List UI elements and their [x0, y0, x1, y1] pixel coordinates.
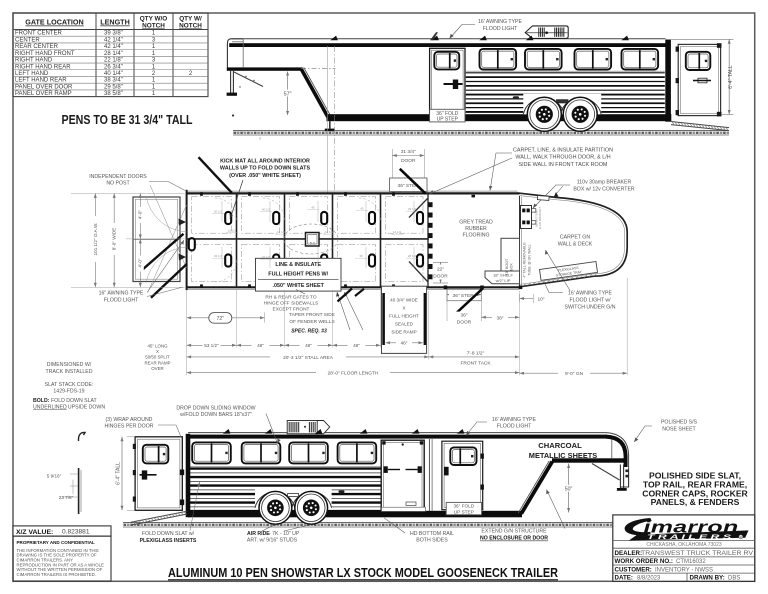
svg-text:BOTH SIDES: BOTH SIDES — [416, 538, 448, 544]
svg-text:X: X — [402, 306, 405, 311]
svg-text:QTY W/O: QTY W/O — [140, 16, 168, 23]
svg-text:GATE LOCATION: GATE LOCATION — [25, 18, 83, 27]
svg-text:PANEL OVER RAMP: PANEL OVER RAMP — [15, 91, 72, 97]
svg-text:0.823881: 0.823881 — [62, 529, 90, 536]
svg-text:CTM16032: CTM16032 — [676, 559, 706, 565]
svg-text:45: 45 — [360, 207, 364, 211]
svg-text:26 3/4": 26 3/4" — [104, 64, 123, 70]
svg-text:SLAT STACK CODE:: SLAT STACK CODE: — [45, 382, 94, 388]
svg-text:10 1/2: 10 1/2 — [228, 229, 237, 233]
svg-text:12 1/2: 12 1/2 — [325, 230, 334, 234]
svg-text:CIMARRON TRAILERS IS PROHIBITE: CIMARRON TRAILERS IS PROHIBITED. — [17, 572, 96, 577]
svg-text:FLOOD LIGHT: FLOOD LIGHT — [104, 297, 139, 303]
svg-text:32 1/2: 32 1/2 — [262, 255, 271, 259]
svg-text:16' AWNING TYPE: 16' AWNING TYPE — [568, 290, 612, 296]
svg-text:WALLS UP TO FOLD DOWN SLATS: WALLS UP TO FOLD DOWN SLATS — [220, 166, 311, 172]
svg-text:ART. w/ 9/16" STUDS: ART. w/ 9/16" STUDS — [247, 538, 298, 544]
svg-text:42 1/4": 42 1/4" — [104, 44, 123, 50]
svg-text:OF FENDER WELLS: OF FENDER WELLS — [289, 319, 334, 325]
svg-text:DIMENSIONED W/: DIMENSIONED W/ — [47, 362, 92, 368]
svg-text:.050" WHITE SHEET: .050" WHITE SHEET — [273, 283, 325, 289]
svg-text:DEALER:: DEALER: — [615, 550, 643, 557]
svg-text:ALUMINUM 10 PEN SHOWSTAR LX ST: ALUMINUM 10 PEN SHOWSTAR LX STOCK MODEL … — [168, 565, 559, 580]
svg-text:16' AWNING TYPE: 16' AWNING TYPE — [492, 417, 536, 423]
svg-text:BOX: BOX — [510, 263, 514, 271]
svg-text:HINGES PER DOOR: HINGES PER DOOR — [104, 424, 153, 430]
svg-text:LINE & INSULATE: LINE & INSULATE — [275, 262, 321, 268]
svg-text:38": 38" — [496, 316, 503, 322]
svg-text:INVENTORY - NWSS: INVENTORY - NWSS — [655, 567, 713, 573]
svg-text:4" TALL REMOVABLE: 4" TALL REMOVABLE — [523, 242, 527, 278]
svg-text:: UPSIDE DOWN: : UPSIDE DOWN — [65, 404, 105, 410]
svg-text:FLOORING: FLOORING — [462, 233, 489, 239]
svg-text:BOX w/ 12v CONVERTER: BOX w/ 12v CONVERTER — [573, 187, 635, 193]
svg-text:50": 50" — [565, 487, 573, 493]
svg-text:RH & REAR GATES TO: RH & REAR GATES TO — [265, 295, 316, 301]
svg-text:CHARCOAL: CHARCOAL — [538, 441, 582, 450]
svg-text:6'-4" TALL: 6'-4" TALL — [728, 65, 734, 89]
svg-text:NOTCH: NOTCH — [142, 23, 165, 30]
svg-text:8'-0" WIDE: 8'-0" WIDE — [112, 228, 117, 250]
svg-text:FULL HEIGHT PENS W/: FULL HEIGHT PENS W/ — [268, 272, 328, 278]
svg-text:RIGHT HAND FRONT: RIGHT HAND FRONT — [15, 51, 75, 57]
svg-text:45: 45 — [311, 206, 315, 210]
svg-text:UP STEP: UP STEP — [437, 117, 459, 123]
svg-text:PANELS, & FENDERS: PANELS, & FENDERS — [651, 497, 740, 507]
svg-text:(3) WRAP AROUND: (3) WRAP AROUND — [106, 417, 153, 423]
svg-text:72": 72" — [216, 316, 224, 322]
svg-text:101 1/2" O.A.W.: 101 1/2" O.A.W. — [93, 223, 98, 256]
svg-text:30 1/2: 30 1/2 — [214, 210, 223, 214]
svg-text:DOOR: DOOR — [457, 320, 472, 326]
svg-text:PANEL OVER DOOR: PANEL OVER DOOR — [15, 84, 73, 90]
svg-text:EXTEND G/N STRUCTURE: EXTEND G/N STRUCTURE — [481, 528, 547, 534]
svg-text:35: 35 — [359, 254, 363, 258]
svg-text:40 1/2: 40 1/2 — [262, 208, 271, 212]
svg-text:METALLIC SHEETS: METALLIC SHEETS — [529, 451, 598, 460]
svg-text:53 1/2": 53 1/2" — [204, 343, 219, 348]
svg-text:SEALED: SEALED — [395, 322, 414, 327]
svg-text:4'-0": 4'-0" — [138, 210, 143, 220]
svg-text:CARPET GN: CARPET GN — [560, 235, 590, 241]
svg-text:SWITCH UNDER G/N: SWITCH UNDER G/N — [564, 305, 615, 311]
svg-text:2: 2 — [242, 130, 244, 134]
svg-text:INDEPENDENT DOORS: INDEPENDENT DOORS — [89, 174, 147, 180]
svg-text:CARPET, LINE, & INSULATE PARTI: CARPET, LINE, & INSULATE PARTITION — [513, 148, 613, 154]
svg-text:22 1/8": 22 1/8" — [104, 58, 123, 64]
svg-text:8/8/2023: 8/8/2023 — [637, 576, 661, 582]
svg-text:FOLD DOWN SLAT w/: FOLD DOWN SLAT w/ — [142, 531, 195, 537]
svg-text:1429-FDS-19: 1429-FDS-19 — [53, 389, 84, 395]
svg-text:23 7/8": 23 7/8" — [59, 495, 74, 500]
svg-text:48": 48" — [305, 343, 312, 348]
svg-text:RUBBER: RUBBER — [465, 226, 487, 232]
svg-text:SIDE WALL IN FRONT TACK ROOM: SIDE WALL IN FRONT TACK ROOM — [519, 162, 608, 168]
svg-text:DRAWN BY:: DRAWN BY: — [690, 575, 725, 582]
svg-text:DOOR: DOOR — [401, 158, 416, 164]
svg-text:PLEXIGLASS INSERTS: PLEXIGLASS INSERTS — [140, 538, 197, 544]
svg-text:7'-8 1/2": 7'-8 1/2" — [467, 350, 485, 356]
svg-text:31 3/4": 31 3/4" — [401, 149, 416, 155]
svg-text:UP STEP: UP STEP — [454, 509, 474, 514]
svg-text:- 7K - 10" UP: - 7K - 10" UP — [269, 531, 300, 537]
svg-text:T R A I L E R S: T R A I L E R S — [647, 534, 732, 541]
svg-text:9'-0" GN: 9'-0" GN — [565, 371, 584, 377]
svg-text:WALL & DECK: WALL & DECK — [558, 242, 593, 248]
svg-text:16" AWNING TYPE: 16" AWNING TYPE — [99, 291, 144, 297]
svg-text:SIDE RAMP: SIDE RAMP — [391, 330, 416, 335]
svg-text:38 5/8": 38 5/8" — [104, 91, 123, 97]
svg-text:WORK ORDER NO.:: WORK ORDER NO.: — [615, 558, 673, 565]
svg-text:HD BOTTOM RAIL: HD BOTTOM RAIL — [410, 531, 454, 537]
svg-text:WALL, WALK THROUGH DOOR, & L/H: WALL, WALK THROUGH DOOR, & L/H — [515, 155, 610, 161]
svg-text:LEFT HAND: LEFT HAND — [15, 71, 49, 77]
svg-text:DBS: DBS — [728, 576, 740, 582]
svg-text:29 1/2: 29 1/2 — [408, 207, 417, 211]
svg-text:X: X — [156, 349, 159, 354]
svg-text:12 1/4: 12 1/4 — [277, 230, 286, 234]
svg-text:POLISHED S/S: POLISHED S/S — [661, 420, 698, 426]
svg-text:DATE:: DATE: — [615, 575, 633, 582]
svg-text:36": 36" — [460, 313, 467, 319]
svg-text:5 9/16": 5 9/16" — [47, 474, 62, 479]
svg-text:TAPER FRONT SIDE: TAPER FRONT SIDE — [289, 312, 335, 318]
svg-text:REAR CENTER: REAR CENTER — [15, 44, 59, 50]
svg-text:4'-0": 4'-0" — [138, 258, 143, 268]
svg-text:UNDERLINED: UNDERLINED — [33, 404, 67, 410]
svg-text:AIR RIDE: AIR RIDE — [247, 531, 270, 537]
svg-text:LEFT HAND REAR: LEFT HAND REAR — [15, 78, 67, 84]
svg-text:12 1/2: 12 1/2 — [393, 230, 402, 234]
svg-text:DOOR: DOOR — [433, 273, 448, 279]
svg-text:PENS TO BE 31 3/4" TALL: PENS TO BE 31 3/4" TALL — [62, 113, 193, 127]
svg-text:48": 48" — [353, 343, 360, 348]
svg-text:46": 46" — [400, 341, 407, 347]
svg-text:BOLD:: BOLD: — [33, 398, 50, 404]
svg-text:DROP DOWN SLIDING WINDOW: DROP DOWN SLIDING WINDOW — [176, 405, 255, 411]
svg-text:3: 3 — [259, 137, 261, 141]
svg-text:10": 10" — [537, 297, 544, 303]
svg-text:18" SHELF: 18" SHELF — [493, 273, 513, 278]
svg-text:FLOOD LIGHT: FLOOD LIGHT — [497, 424, 532, 430]
svg-text:39 3/8": 39 3/8" — [104, 31, 123, 37]
svg-text:KICK MAT ALL AROUND INTERIOR: KICK MAT ALL AROUND INTERIOR — [220, 159, 310, 165]
svg-text:28 1/4": 28 1/4" — [104, 51, 123, 57]
svg-text:NO ENCLOSURE OR DOOR: NO ENCLOSURE OR DOOR — [480, 536, 548, 542]
svg-text:X/Z VALUE:: X/Z VALUE: — [16, 529, 53, 536]
svg-text:RIGHT HAND REAR: RIGHT HAND REAR — [15, 64, 71, 70]
svg-text:TUBE @ GN WALL: TUBE @ GN WALL — [528, 244, 532, 275]
svg-text:28 1/2: 28 1/2 — [408, 254, 417, 258]
svg-text:50/50 SPLIT: 50/50 SPLIT — [145, 355, 170, 360]
svg-text:42 1/4": 42 1/4" — [104, 37, 123, 43]
svg-text:16' AWNING TYPE: 16' AWNING TYPE — [478, 19, 522, 25]
svg-text:TRANSWEST TRUCK TRAILER RV: TRANSWEST TRUCK TRAILER RV — [641, 551, 753, 557]
svg-text:TRACK INSTALLED: TRACK INSTALLED — [46, 369, 93, 375]
svg-text:CUSTOMER:: CUSTOMER: — [615, 566, 652, 573]
svg-text:22": 22" — [437, 266, 444, 272]
svg-text:57": 57" — [284, 92, 292, 98]
svg-text:45" LONG: 45" LONG — [147, 344, 168, 349]
svg-text:NOTCH: NOTCH — [179, 23, 202, 30]
svg-text:w/FOLD DOWN BARS 18"x37": w/FOLD DOWN BARS 18"x37" — [180, 412, 252, 418]
svg-text:NOSE SHEET: NOSE SHEET — [662, 426, 696, 432]
svg-text:110v 30amp BREAKER: 110v 30amp BREAKER — [577, 180, 632, 186]
svg-text:CHICKASHA, OKLAHOMA 73023: CHICKASHA, OKLAHOMA 73023 — [646, 542, 722, 548]
svg-text:38 3/4": 38 3/4" — [104, 78, 123, 84]
svg-text:20'-3 1/2" STALL AREA: 20'-3 1/2" STALL AREA — [283, 355, 334, 361]
svg-text:28'-0" FLOOR LENGTH: 28'-0" FLOOR LENGTH — [328, 371, 379, 377]
svg-text:w/2" LIP: w/2" LIP — [496, 278, 511, 283]
svg-text:(OVER .050" WHITE SHEET): (OVER .050" WHITE SHEET) — [229, 173, 301, 179]
svg-text:SPEC. REQ. #3: SPEC. REQ. #3 — [291, 328, 327, 334]
svg-text:PROPRIETARY AND CONFIDENTIAL: PROPRIETARY AND CONFIDENTIAL — [17, 540, 96, 545]
svg-text:EXCEPT FRONT: EXCEPT FRONT — [273, 307, 310, 313]
svg-text:FLOOD LIGHT w/: FLOOD LIGHT w/ — [569, 298, 611, 304]
svg-text:REAR RAMP: REAR RAMP — [144, 360, 170, 365]
svg-text:FULL HEIGHT: FULL HEIGHT — [389, 314, 419, 319]
svg-text:LENGTH: LENGTH — [100, 18, 130, 27]
svg-text:& GN BRACKET: & GN BRACKET — [538, 207, 542, 230]
svg-text:34 1/4: 34 1/4 — [214, 254, 223, 258]
svg-text:5'-0: 5'-0 — [310, 241, 315, 245]
svg-text:NO POST: NO POST — [106, 180, 130, 186]
svg-text:FOLD DOWN SLAT: FOLD DOWN SLAT — [51, 398, 98, 404]
svg-text:HINGE OFF SIDEWALLS: HINGE OFF SIDEWALLS — [264, 301, 319, 307]
svg-text:FLOOD LIGHT: FLOOD LIGHT — [483, 26, 518, 32]
svg-text:GREY TREAD: GREY TREAD — [459, 220, 493, 226]
svg-text:OVER: OVER — [151, 366, 163, 371]
svg-text:36" FOLD: 36" FOLD — [453, 504, 474, 509]
svg-text:FRONT TACK: FRONT TACK — [460, 360, 491, 366]
svg-text:FRONT CENTER: FRONT CENTER — [15, 31, 63, 37]
svg-text:CENTER: CENTER — [15, 37, 40, 43]
svg-text:QTY W/: QTY W/ — [179, 16, 202, 23]
svg-text:6'-4" TALL: 6'-4" TALL — [116, 462, 122, 485]
svg-text:29 5/8": 29 5/8" — [104, 84, 123, 90]
svg-text:48": 48" — [257, 343, 264, 348]
svg-text:40 3/4" WIDE: 40 3/4" WIDE — [390, 298, 418, 303]
svg-text:36" STEP: 36" STEP — [453, 293, 474, 299]
svg-text:40 1/4": 40 1/4" — [104, 71, 123, 77]
svg-text:RIGHT HAND: RIGHT HAND — [15, 58, 53, 64]
